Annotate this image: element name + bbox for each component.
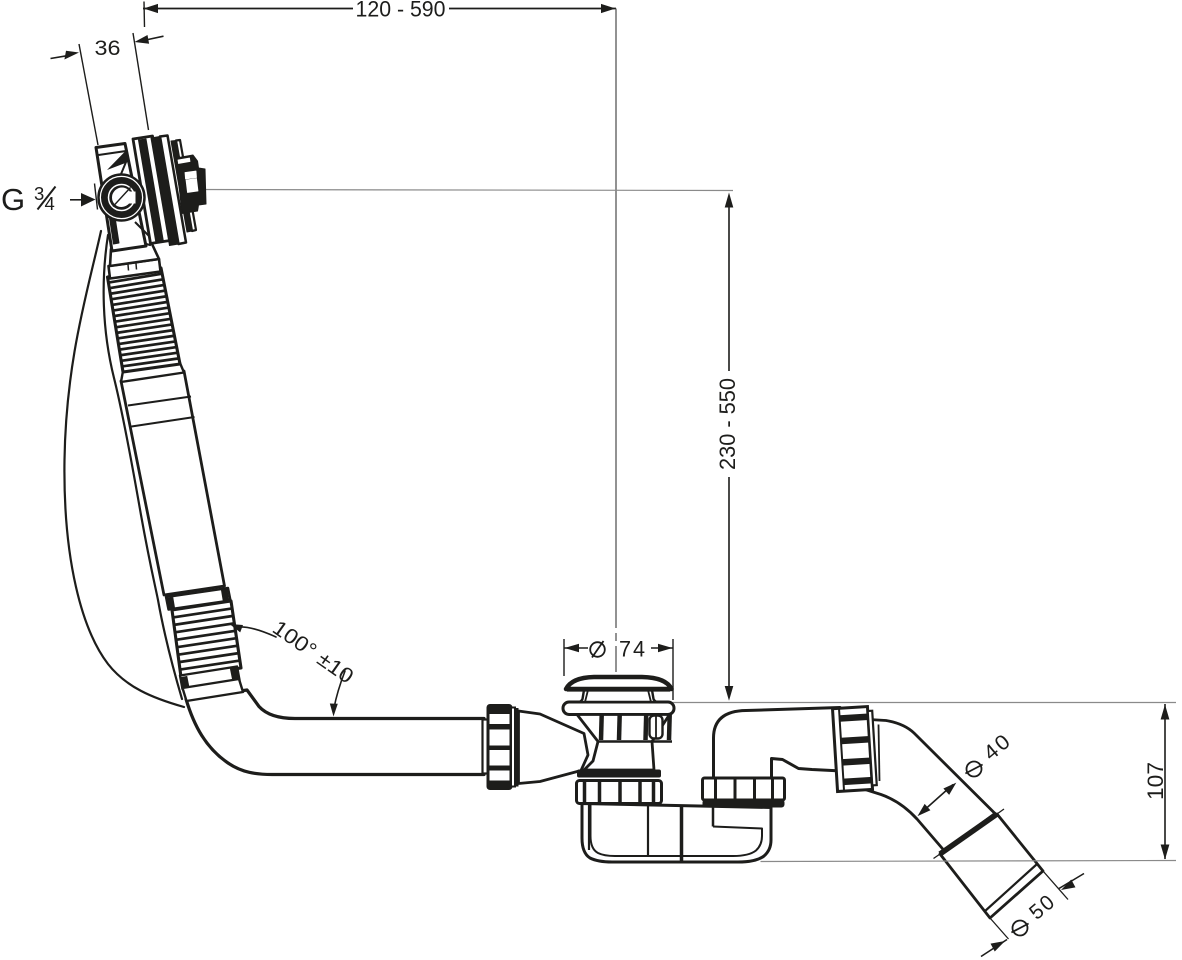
svg-text:74: 74 [619, 637, 647, 662]
svg-text:3: 3 [34, 183, 44, 204]
svg-text:G: G [1, 182, 25, 217]
svg-text:4: 4 [45, 193, 55, 214]
svg-text:36: 36 [95, 37, 121, 60]
svg-text:230 - 550: 230 - 550 [715, 378, 740, 470]
svg-text:120 - 590: 120 - 590 [356, 0, 446, 22]
svg-text:107: 107 [1143, 762, 1168, 800]
